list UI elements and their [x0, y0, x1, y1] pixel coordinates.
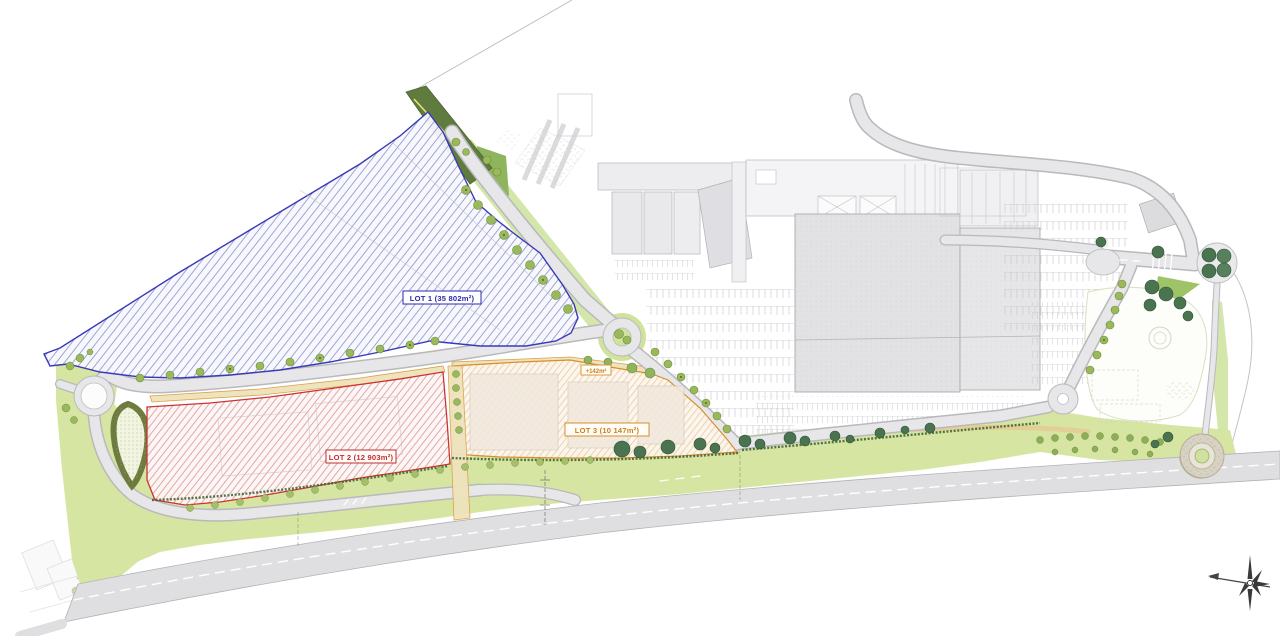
roundabout-west — [74, 376, 114, 416]
lot1-parcel — [44, 112, 578, 378]
gravel-spiral-mound — [1180, 434, 1224, 478]
lot2-label: LOT 2 (12 903m²) — [329, 453, 394, 462]
lot1-label-box: LOT 1 (35 802m²) — [403, 291, 481, 304]
roundabout-east — [1048, 384, 1078, 414]
roundabout-center — [603, 318, 641, 356]
site-plan-drawing: LOT 1 (35 802m²) LOT 2 (12 903m²) LOT 3 … — [0, 0, 1280, 636]
tree-circle — [1197, 243, 1237, 283]
lot2-label-box: LOT 2 (12 903m²) — [326, 450, 396, 463]
junction-plaza — [1086, 249, 1120, 275]
site-plan-canvas: LOT 1 (35 802m²) LOT 2 (12 903m²) LOT 3 … — [0, 0, 1280, 636]
lot3-label: LOT 3 (10 147m²) — [575, 426, 640, 435]
lot3-label-box: LOT 3 (10 147m²) — [565, 423, 649, 436]
annex-label-box: +142m² — [581, 365, 611, 375]
north-arrow-icon — [1208, 555, 1270, 611]
lot1-label: LOT 1 (35 802m²) — [410, 294, 475, 303]
annex-label: +142m² — [586, 368, 607, 375]
